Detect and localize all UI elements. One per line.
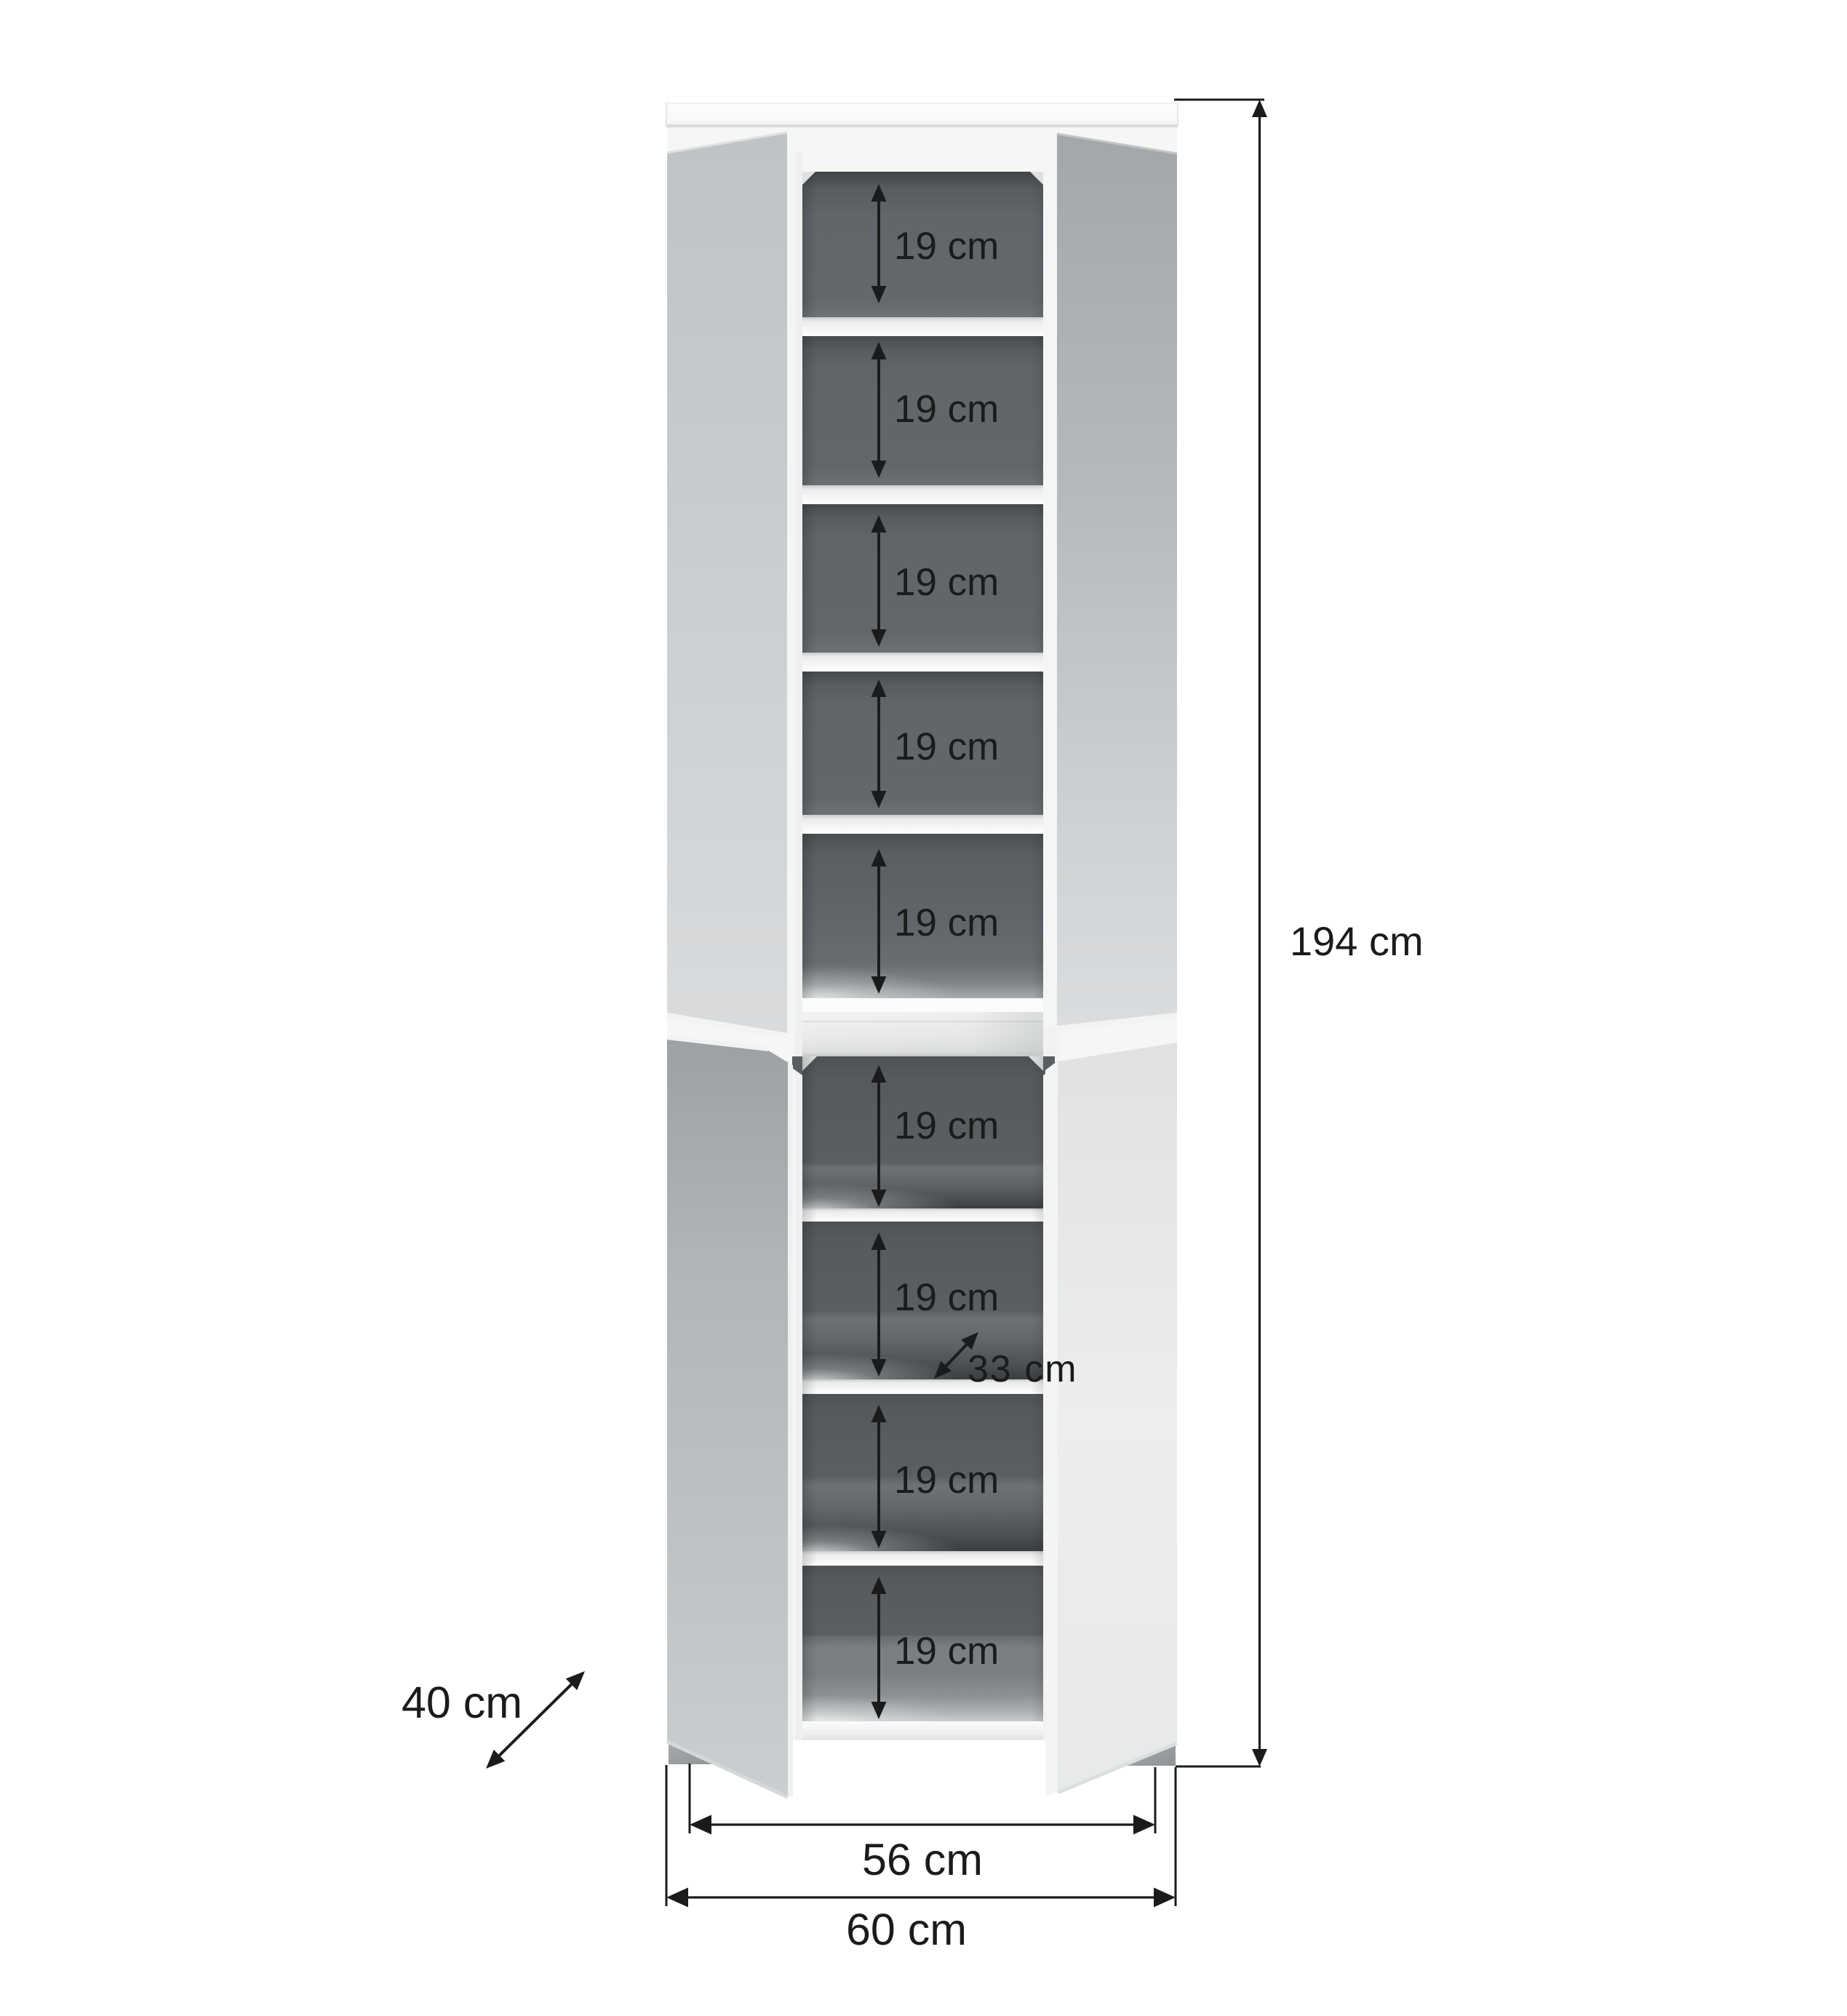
svg-text:19 cm: 19 cm (894, 1276, 999, 1319)
svg-text:60 cm: 60 cm (846, 1905, 967, 1954)
svg-text:19 cm: 19 cm (894, 1630, 999, 1673)
svg-text:19 cm: 19 cm (894, 388, 999, 431)
svg-text:19 cm: 19 cm (894, 725, 999, 768)
svg-text:19 cm: 19 cm (894, 1459, 999, 1502)
svg-text:19 cm: 19 cm (894, 1104, 999, 1147)
svg-text:194 cm: 194 cm (1290, 918, 1424, 964)
svg-text:19 cm: 19 cm (894, 225, 999, 268)
svg-text:56 cm: 56 cm (862, 1835, 983, 1884)
svg-text:40 cm: 40 cm (402, 1678, 522, 1727)
svg-text:33 cm: 33 cm (968, 1348, 1078, 1390)
svg-text:19 cm: 19 cm (894, 901, 999, 944)
svg-text:19 cm: 19 cm (894, 561, 999, 604)
